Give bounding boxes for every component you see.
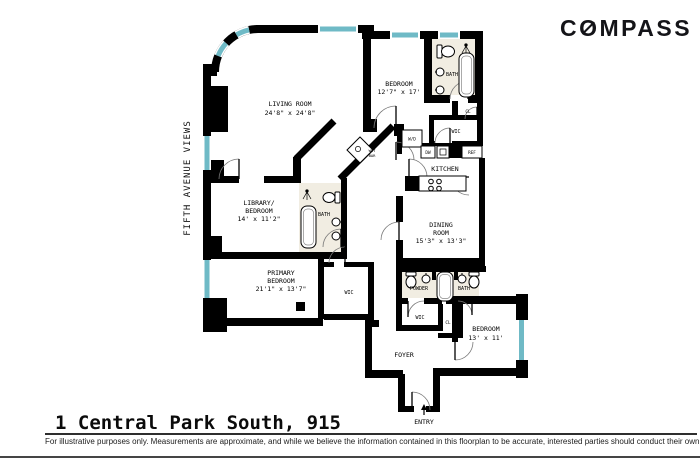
label-dishwasher: DW <box>425 150 431 156</box>
label-wic-primary: WIC <box>344 290 353 296</box>
stove-icon <box>419 176 466 191</box>
bathtub-icon <box>437 272 453 301</box>
label-dining-1: DINING <box>429 221 453 229</box>
bottom-border-line <box>0 456 700 458</box>
label-primary-1: PRIMARY <box>267 269 294 277</box>
label-bath-mid: BATH <box>318 212 330 218</box>
toilet-icon <box>469 272 479 288</box>
label-kitchen: KITCHEN <box>431 165 458 173</box>
label-entry: ENTRY <box>414 418 434 426</box>
label-bedroom-bottom: BEDROOM <box>472 325 499 333</box>
floorplan-page: COMPASS FIFTH AVENUE VIEWS <box>0 0 700 466</box>
bathtub-icon <box>301 206 316 248</box>
label-foyer: FOYER <box>394 351 414 359</box>
compass-logo-text: COMPASS <box>560 15 692 41</box>
label-bedroom-bottom-dims: 13' x 11' <box>468 334 503 342</box>
entry-arrow-icon <box>421 404 427 415</box>
toilet-icon <box>323 192 340 203</box>
label-powder: POWDER <box>410 286 429 292</box>
label-refrigerator: REF <box>468 150 476 156</box>
label-bedroom-top-dims: 12'7" x 17' <box>377 88 420 96</box>
label-bedroom-top: BEDROOM <box>385 80 412 88</box>
disclaimer-text: For illustrative purposes only. Measurem… <box>45 437 697 446</box>
floorplan-svg: LIVING ROOM 24'8" x 24'8" BEDROOM 12'7" … <box>0 0 700 466</box>
counter-box <box>437 146 449 158</box>
label-living-room-dims: 24'8" x 24'8" <box>265 109 316 117</box>
divider-line <box>45 433 697 435</box>
label-closet-top: CL <box>465 109 471 115</box>
label-dining-dims: 15'3" x 13'3" <box>416 237 467 245</box>
label-closet-bottom: CL <box>445 320 451 326</box>
label-washer-dryer: W/D <box>408 137 416 143</box>
door-arcs <box>219 81 477 410</box>
label-primary-2: BEDROOM <box>267 277 294 285</box>
compass-logo: COMPASS <box>560 15 692 42</box>
label-library-dims: 14' x 11'2" <box>237 215 280 223</box>
label-primary-dims: 21'1" x 13'7" <box>256 285 307 293</box>
fifth-avenue-views-label: FIFTH AVENUE VIEWS <box>183 120 193 236</box>
label-library-2: BEDROOM <box>245 207 272 215</box>
label-wic-bottom: WIC <box>415 315 424 321</box>
label-wet-bar-2: BAR <box>369 153 377 158</box>
label-bath-bottom: BATH <box>458 286 470 292</box>
label-library-1: LIBRARY/ <box>243 199 274 207</box>
label-bath-top: BATH <box>446 72 458 78</box>
label-living-room: LIVING ROOM <box>268 100 311 108</box>
toilet-icon <box>437 45 455 58</box>
label-dining-2: ROOM <box>433 229 449 237</box>
label-wic-top: WIC <box>451 129 460 135</box>
bathtub-icon <box>459 53 474 97</box>
plan-title: 1 Central Park South, 915 <box>55 412 341 434</box>
